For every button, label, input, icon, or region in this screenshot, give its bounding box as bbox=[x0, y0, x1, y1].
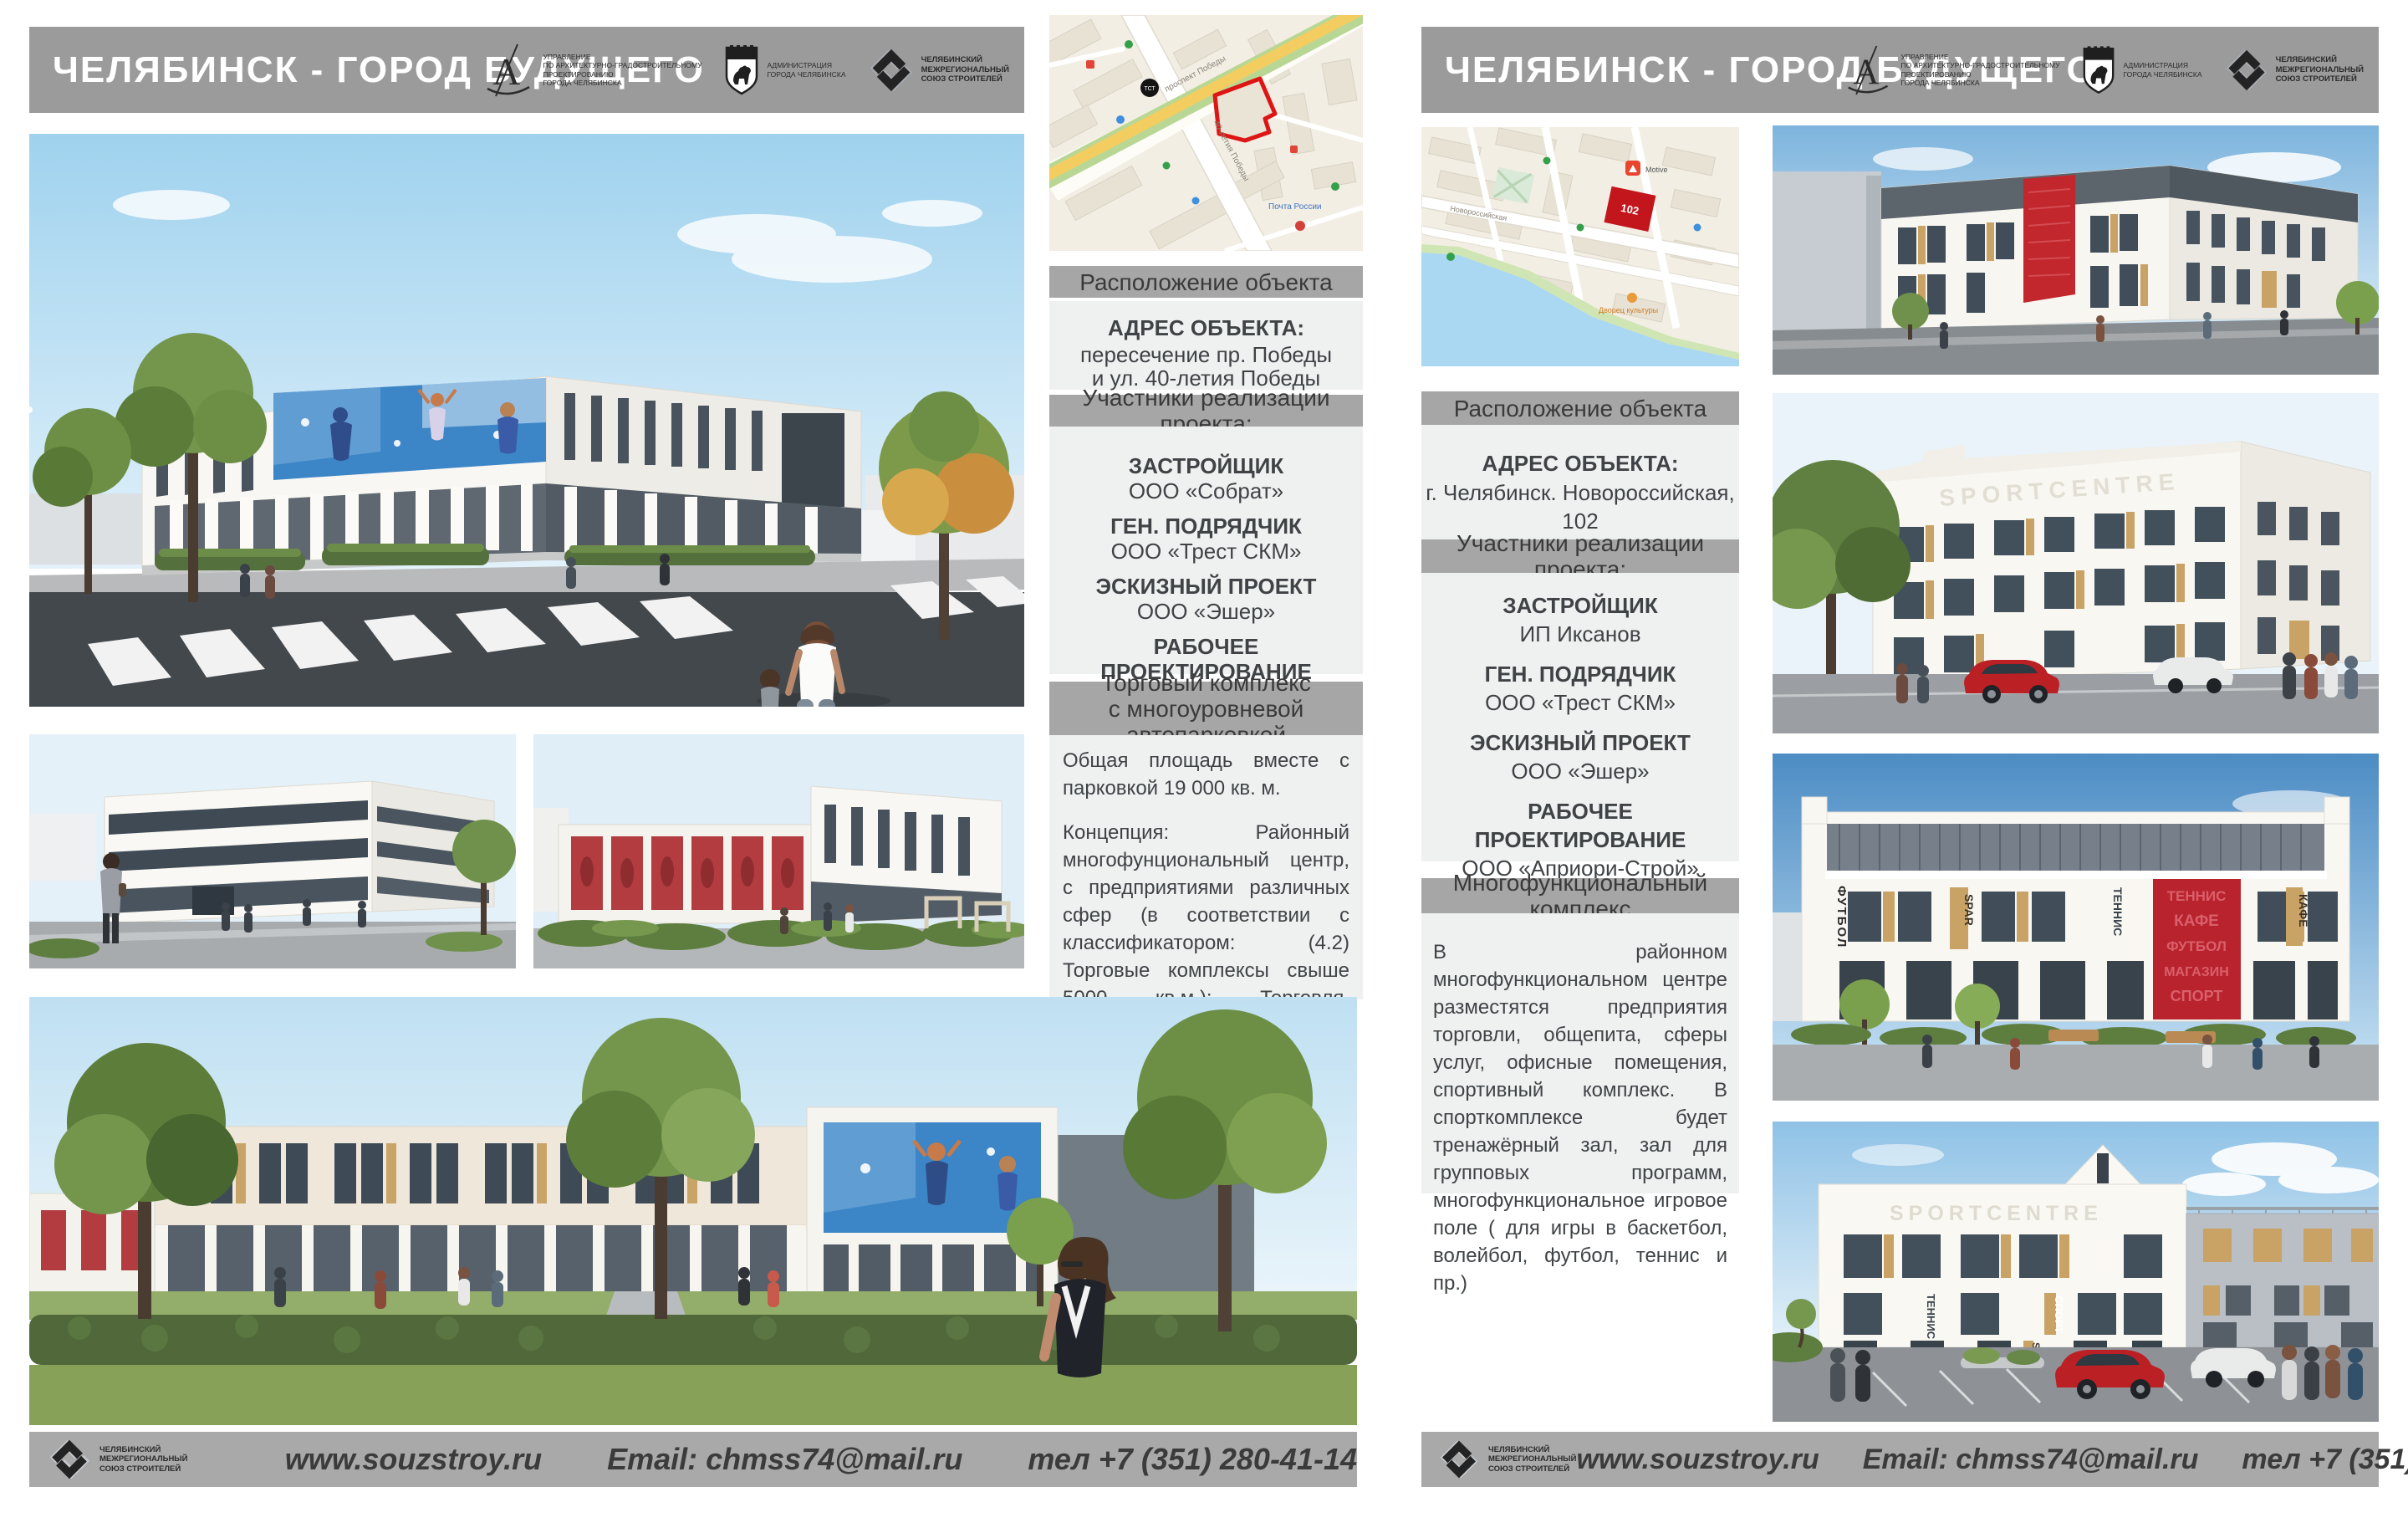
building: SPORTCENTRE bbox=[1873, 442, 2370, 682]
section-heading-label: Расположение объекта bbox=[1079, 269, 1333, 295]
footer-phone: тел +7 (351) 280-41-14 bbox=[1028, 1442, 1357, 1477]
svg-text:СПОРТ: СПОРТ bbox=[2171, 988, 2223, 1004]
footer-website: www.souzstroy.ru bbox=[1576, 1444, 1819, 1476]
compass-a-icon: А bbox=[484, 41, 536, 100]
participants-block-right: ЗАСТРОЙЩИК ИП Иксанов ГЕН. ПОДРЯДЧИК ООО… bbox=[1421, 573, 1739, 861]
description-block-right: В районном многофункциональном центре ра… bbox=[1421, 913, 1739, 1193]
compass-a-icon: А bbox=[1845, 43, 1894, 98]
participants-block-left: ЗАСТРОЙЩИК ООО «Собрат» ГЕН. ПОДРЯДЧИК О… bbox=[1049, 427, 1363, 674]
svg-text:ТСТ: ТСТ bbox=[1144, 86, 1156, 92]
builders-union-name: ЧЕЛЯБИНСКИЙ МЕЖРЕГИОНАЛЬНЫЙ СОЮЗ СТРОИТЕ… bbox=[1488, 1445, 1576, 1474]
svg-text:ТЕННИС: ТЕННИС bbox=[2167, 888, 2227, 904]
participant-role: ЭСКИЗНЫЙ ПРОЕКТ bbox=[1421, 728, 1739, 757]
hedge bbox=[29, 1315, 1357, 1365]
architecture-dept-name: УПРАВЛЕНИЕ ПО АРХИТЕКТУРНО-ГРАДОСТРОИТЕЛ… bbox=[1900, 53, 2059, 88]
render-mid-right-red-panels bbox=[533, 734, 1024, 968]
architecture-dept-logo: А УПРАВЛЕНИЕ ПО АРХИТЕКТУРНО-ГРАДОСТРОИТ… bbox=[1845, 43, 2059, 98]
address-block-left: АДРЕС ОБЪЕКТА: пересечение пр. Победы и … bbox=[1049, 301, 1363, 390]
tennis-sign: ТЕННИС bbox=[1925, 1294, 1937, 1340]
sportcentre-embossed-label: SPORTCENTRE bbox=[1890, 1202, 2103, 1225]
road bbox=[29, 592, 1024, 707]
participant-name: ООО «Трест СКМ» bbox=[1049, 539, 1363, 564]
participant-role: ЭСКИЗНЫЙ ПРОЕКТ bbox=[1049, 574, 1363, 599]
building: ТЕННИС КАФЕ ФУТБОЛ МАГАЗИН СПОРТ ФУТБОЛ … bbox=[1802, 797, 2349, 1021]
building bbox=[105, 781, 494, 923]
render-right-2-corner-sportcentre: SPORTCENTRE bbox=[1773, 393, 2379, 733]
footer-email: Email: chmss74@mail.ru bbox=[1863, 1444, 2199, 1476]
description-paragraph: В районном многофункциональном центре ра… bbox=[1433, 938, 1727, 1297]
participant-role: РАБОЧЕЕ ПРОЕКТИРОВАНИЕ bbox=[1421, 797, 1739, 854]
coat-of-arms-icon bbox=[2081, 45, 2116, 95]
render-right-4-parking-view: SPORTCENTRE ТЕННИС СПОРТ SPAR bbox=[1773, 1122, 2379, 1422]
city-administration-name: АДМИНИСТРАЦИЯ ГОРОДА ЧЕЛЯБИНСКА bbox=[767, 61, 845, 79]
section-heading-participants-left: Участники реализации проекта: bbox=[1049, 395, 1363, 427]
union-diamond-icon bbox=[868, 47, 915, 94]
union-diamond-icon bbox=[1438, 1438, 1480, 1480]
svg-text:А: А bbox=[1854, 52, 1880, 91]
section-heading-participants-right: Участники реализации проекта: bbox=[1421, 539, 1739, 573]
sport-sign: СПОРТ bbox=[2053, 1295, 2065, 1333]
participant-entry: ЭСКИЗНЫЙ ПРОЕКТ ООО «Эшер» bbox=[1421, 728, 1739, 785]
footer-email: Email: chmss74@mail.ru bbox=[607, 1442, 962, 1477]
union-diamond-icon bbox=[48, 1438, 91, 1481]
header-logos: А УПРАВЛЕНИЕ ПО АРХИТЕКТУРНО-ГРАДОСТРОИТ… bbox=[1845, 27, 2364, 113]
address-block-right: АДРЕС ОБЪЕКТА: г. Челябинск. Новороссийс… bbox=[1421, 425, 1739, 539]
poster-right: ЧЕЛЯБИНСК - ГОРОД БУДУЩЕГО А УПРАВЛЕНИЕ … bbox=[1388, 0, 2408, 1533]
participant-role: ГЕН. ПОДРЯДЧИК bbox=[1421, 660, 1739, 688]
footer-logo-group: ЧЕЛЯБИНСКИЙ МЕЖРЕГИОНАЛЬНЫЙ СОЮЗ СТРОИТЕ… bbox=[29, 1438, 285, 1481]
render-bottom-wide-elevation bbox=[29, 997, 1357, 1425]
section-heading-project-right: Многофункциональный комплекс bbox=[1421, 878, 1739, 913]
address-line: пересечение пр. Победы bbox=[1049, 343, 1363, 366]
svg-text:А: А bbox=[492, 50, 520, 93]
map-poi-label-post: Почта России bbox=[1268, 202, 1322, 212]
city-administration-logo: АДМИНИСТРАЦИЯ ГОРОДА ЧЕЛЯБИНСКА bbox=[723, 44, 845, 96]
tennis-sign: ТЕННИС bbox=[2111, 887, 2125, 936]
participant-role: ЗАСТРОЙЩИК bbox=[1421, 591, 1739, 620]
participant-entry: ЗАСТРОЙЩИК ООО «Собрат» bbox=[1049, 453, 1363, 503]
section-heading-label: Расположение объекта bbox=[1454, 396, 1707, 422]
header-logos: А УПРАВЛЕНИЕ ПО АРХИТЕКТУРНО-ГРАДОСТРОИТ… bbox=[484, 27, 1009, 113]
render-right-3-front-elevation: ТЕННИС КАФЕ ФУТБОЛ МАГАЗИН СПОРТ ФУТБОЛ … bbox=[1773, 754, 2379, 1101]
render-mid-left-ribbon-building bbox=[29, 734, 516, 968]
architecture-dept-logo: А УПРАВЛЕНИЕ ПО АРХИТЕКТУРНО-ГРАДОСТРОИТ… bbox=[484, 41, 701, 100]
map-transit-stop: ТСТ bbox=[1140, 79, 1159, 97]
participant-name: ИП Иксанов bbox=[1421, 620, 1739, 648]
poster-left-header: ЧЕЛЯБИНСК - ГОРОД БУДУЩЕГО А УПРАВЛЕНИЕ … bbox=[29, 27, 1024, 113]
location-map-left: ТСТ проспект Победы 40-летия Победы Почт… bbox=[1049, 15, 1363, 251]
section-heading-location-left: Расположение объекта bbox=[1049, 266, 1363, 298]
coat-of-arms-icon bbox=[723, 44, 760, 96]
building bbox=[1881, 166, 2358, 330]
poster-left-footer: ЧЕЛЯБИНСКИЙ МЕЖРЕГИОНАЛЬНЫЙ СОЮЗ СТРОИТЕ… bbox=[29, 1432, 1357, 1487]
poster-left: ЧЕЛЯБИНСК - ГОРОД БУДУЩЕГО А УПРАВЛЕНИЕ … bbox=[0, 0, 1388, 1533]
participant-role: ЗАСТРОЙЩИК bbox=[1049, 453, 1363, 478]
participant-entry: ЭСКИЗНЫЙ ПРОЕКТ ООО «Эшер» bbox=[1049, 574, 1363, 624]
ground bbox=[1773, 1045, 2379, 1101]
city-administration-name: АДМИНИСТРАЦИЯ ГОРОДА ЧЕЛЯБИНСКА bbox=[2123, 61, 2201, 79]
svg-text:Motive: Motive bbox=[1645, 166, 1668, 174]
address-label: АДРЕС ОБЪЕКТА: bbox=[1421, 448, 1739, 478]
participant-entry: ЗАСТРОЙЩИК ИП Иксанов bbox=[1421, 591, 1739, 648]
presentation-boards-page: ЧЕЛЯБИНСК - ГОРОД БУДУЩЕГО А УПРАВЛЕНИЕ … bbox=[0, 0, 2408, 1533]
participant-role: ГЕН. ПОДРЯДЧИК bbox=[1049, 514, 1363, 539]
architecture-dept-name: УПРАВЛЕНИЕ ПО АРХИТЕКТУРНО-ГРАДОСТРОИТЕЛ… bbox=[543, 53, 701, 88]
spar-sign: SPAR bbox=[1962, 894, 1976, 926]
section-heading-project-left: Торговый комплекс с многоуровневой автоп… bbox=[1049, 682, 1363, 735]
project-heading-line: Торговый комплекс bbox=[1101, 670, 1311, 696]
builders-union-logo: ЧЕЛЯБИНСКИЙ МЕЖРЕГИОНАЛЬНЫЙ СОЮЗ СТРОИТЕ… bbox=[868, 47, 1009, 94]
svg-text:Дворец культуры: Дворец культуры bbox=[1599, 306, 1658, 314]
description-block-left: Общая площадь вместе с парковкой 19 000 … bbox=[1049, 735, 1363, 999]
gray-building bbox=[2186, 1209, 2379, 1347]
svg-text:КАФЕ: КАФЕ bbox=[2174, 912, 2219, 930]
section-heading-location-right: Расположение объекта bbox=[1421, 391, 1739, 425]
footer-website: www.souzstroy.ru bbox=[285, 1442, 542, 1477]
participant-name: ООО «Эшер» bbox=[1049, 599, 1363, 624]
footer-phone: тел +7 (351) 280-41-14 bbox=[2242, 1444, 2408, 1476]
red-typographic-panel: ТЕННИС КАФЕ ФУТБОЛ МАГАЗИН СПОРТ bbox=[2153, 879, 2241, 1019]
football-sign: ФУТБОЛ bbox=[1834, 886, 1849, 948]
render-right-1-corner-red-accent bbox=[1773, 125, 2379, 375]
poster-right-header: ЧЕЛЯБИНСК - ГОРОД БУДУЩЕГО А УПРАВЛЕНИЕ … bbox=[1421, 27, 2379, 113]
svg-text:МАГАЗИН: МАГАЗИН bbox=[2164, 965, 2229, 979]
address-label: АДРЕС ОБЪЕКТА: bbox=[1049, 314, 1363, 341]
footer-contacts: www.souzstroy.ru Email: chmss74@mail.ru … bbox=[1576, 1444, 2408, 1476]
builders-union-logo: ЧЕЛЯБИНСКИЙ МЕЖРЕГИОНАЛЬНЫЙ СОЮЗ СТРОИТЕ… bbox=[2224, 48, 2364, 93]
footer-logo-group: ЧЕЛЯБИНСКИЙ МЕЖРЕГИОНАЛЬНЫЙ СОЮЗ СТРОИТЕ… bbox=[1421, 1438, 1576, 1480]
description-paragraph: Общая площадь вместе с парковкой 19 000 … bbox=[1063, 747, 1349, 802]
poster-right-footer: ЧЕЛЯБИНСКИЙ МЕЖРЕГИОНАЛЬНЫЙ СОЮЗ СТРОИТЕ… bbox=[1421, 1432, 2379, 1487]
participant-entry: ГЕН. ПОДРЯДЧИК ООО «Трест СКМ» bbox=[1049, 514, 1363, 564]
city-administration-logo: АДМИНИСТРАЦИЯ ГОРОДА ЧЕЛЯБИНСКА bbox=[2081, 45, 2201, 95]
location-map-right: 102 Motive Дворец культуры Новороссийска… bbox=[1421, 127, 1739, 366]
builders-union-name: ЧЕЛЯБИНСКИЙ МЕЖРЕГИОНАЛЬНЫЙ СОЮЗ СТРОИТЕ… bbox=[99, 1445, 187, 1474]
participant-name: ООО «Собрат» bbox=[1049, 478, 1363, 503]
svg-text:ФУТБОЛ: ФУТБОЛ bbox=[2166, 938, 2227, 954]
participant-entry: ГЕН. ПОДРЯДЧИК ООО «Трест СКМ» bbox=[1421, 660, 1739, 717]
participant-name: ООО «Эшер» bbox=[1421, 757, 1739, 785]
footer-contacts: www.souzstroy.ru Email: chmss74@mail.ru … bbox=[285, 1442, 1357, 1477]
render-main-trade-complex bbox=[29, 134, 1024, 707]
builders-union-name: ЧЕЛЯБИНСКИЙ МЕЖРЕГИОНАЛЬНЫЙ СОЮЗ СТРОИТЕ… bbox=[921, 55, 1009, 84]
address-line: г. Челябинск. Новороссийская, 102 bbox=[1421, 478, 1739, 535]
participant-name: ООО «Трест СКМ» bbox=[1421, 688, 1739, 717]
union-diamond-icon bbox=[2224, 48, 2269, 93]
builders-union-name: ЧЕЛЯБИНСКИЙ МЕЖРЕГИОНАЛЬНЫЙ СОЮЗ СТРОИТЕ… bbox=[2276, 55, 2364, 84]
cafe-sign: КАФЕ bbox=[2297, 894, 2310, 927]
